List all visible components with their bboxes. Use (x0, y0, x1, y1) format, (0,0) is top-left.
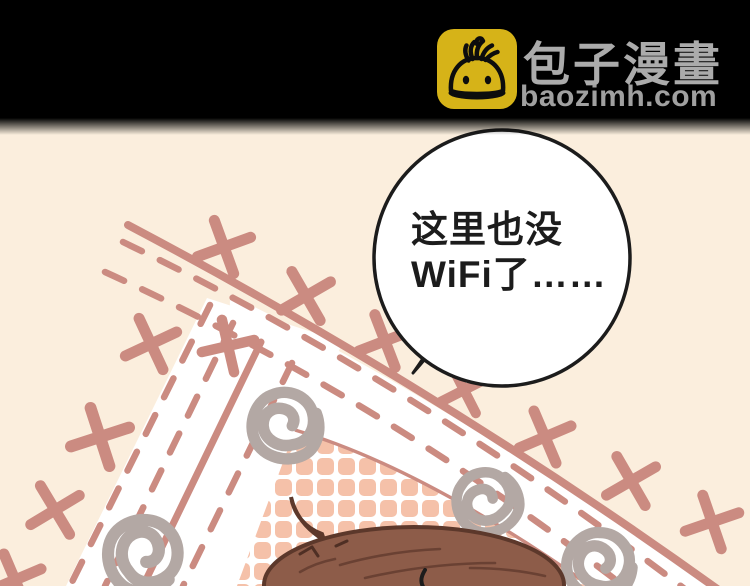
comic-panel (0, 120, 750, 586)
baozi-bun-icon (437, 29, 517, 109)
speech-line-2: WiFi了…… (411, 252, 607, 297)
site-url: baozimh.com (520, 80, 717, 114)
site-banner: 包子漫畫 baozimh.com (0, 0, 750, 118)
comic-reader-page: 包子漫畫 baozimh.com (0, 0, 750, 586)
speech-bubble-text: 这里也没 WiFi了…… (411, 207, 607, 297)
speech-line-1: 这里也没 (411, 207, 607, 252)
baozi-logo-art (437, 29, 517, 109)
